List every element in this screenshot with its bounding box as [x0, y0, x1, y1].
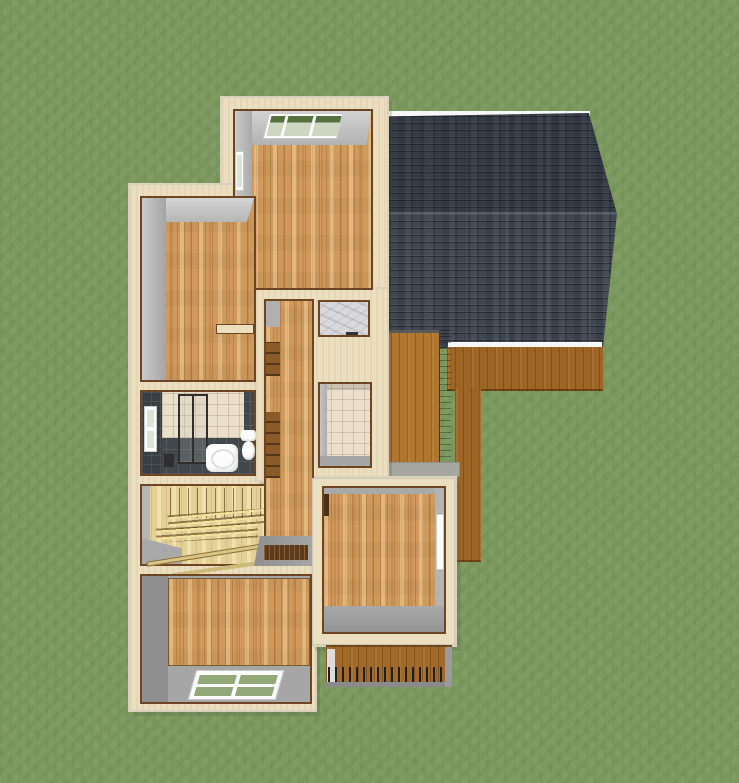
bb-window-pane-4	[235, 687, 275, 696]
sink	[206, 444, 238, 472]
room-right	[322, 486, 446, 634]
siding-wall-under-roof	[447, 347, 603, 391]
room-right-block	[312, 478, 455, 645]
skylight-pane-mid	[284, 116, 314, 136]
room-right-floor-ledge	[324, 606, 444, 632]
siding-wall-left-column	[383, 330, 440, 466]
bb-window-pane-3	[194, 687, 234, 696]
bedroom-left	[140, 196, 256, 382]
toilet	[241, 430, 256, 460]
closet-wall-stub	[216, 324, 254, 334]
room-right-east-window	[436, 514, 444, 570]
deck-railing-balusters	[328, 667, 444, 683]
bathroom-window-glass2	[147, 431, 154, 448]
bedroom-bottom-wood-floor	[168, 578, 310, 666]
tiled-room	[318, 382, 372, 468]
shingle-roof	[383, 113, 617, 348]
hallway-wall-face	[266, 301, 280, 327]
bedroom-top-west-window-glass	[237, 155, 242, 187]
bathroom-window-glass	[147, 410, 154, 427]
bathroom	[140, 390, 256, 476]
marble-closet	[318, 300, 370, 337]
bedroom-bottom	[140, 574, 312, 704]
floor-plan-render	[0, 0, 739, 783]
skylight-window	[263, 113, 343, 139]
tiled-room-top-shadow	[320, 384, 370, 390]
deck-railing-rail	[326, 682, 446, 687]
roof-upper-plane-shade	[383, 113, 617, 213]
hall-closet-shelves-lower	[266, 412, 280, 478]
shower-door-line	[192, 396, 194, 462]
bedroom-left-north-wall-face	[166, 198, 254, 222]
stairwell	[140, 484, 266, 566]
gutter-strip	[439, 328, 451, 469]
stair-landing-boards	[264, 545, 308, 560]
bb-window-pane-1	[197, 675, 237, 684]
bb-window-pane-2	[238, 675, 278, 684]
deck-corner-post	[445, 647, 452, 687]
room-right-door-frame	[324, 494, 329, 516]
hall-closet-shelves-upper	[266, 342, 280, 376]
toilet-tank	[241, 430, 256, 441]
bedroom-left-west-wall-face	[142, 198, 166, 380]
hallway	[264, 299, 314, 548]
marble-closet-door-mark	[346, 332, 358, 335]
bedroom-top-west-window	[235, 151, 244, 191]
skylight-pane-right	[312, 116, 342, 136]
room-right-top-wall-face	[324, 488, 444, 494]
roof-ridge-line	[383, 212, 617, 215]
bathroom-stool	[164, 454, 174, 467]
skylight-pane-left	[267, 116, 286, 136]
deck-siding	[326, 645, 452, 687]
shower-enclosure	[178, 394, 208, 464]
toilet-bowl	[242, 441, 255, 460]
bedroom-bottom-window	[188, 670, 285, 700]
bathroom-window	[144, 406, 157, 452]
tiled-room-floor-ledge	[320, 456, 370, 466]
stair-landing	[254, 536, 312, 566]
tiled-room-west-wall-face	[320, 384, 327, 466]
sink-basin	[211, 449, 235, 469]
